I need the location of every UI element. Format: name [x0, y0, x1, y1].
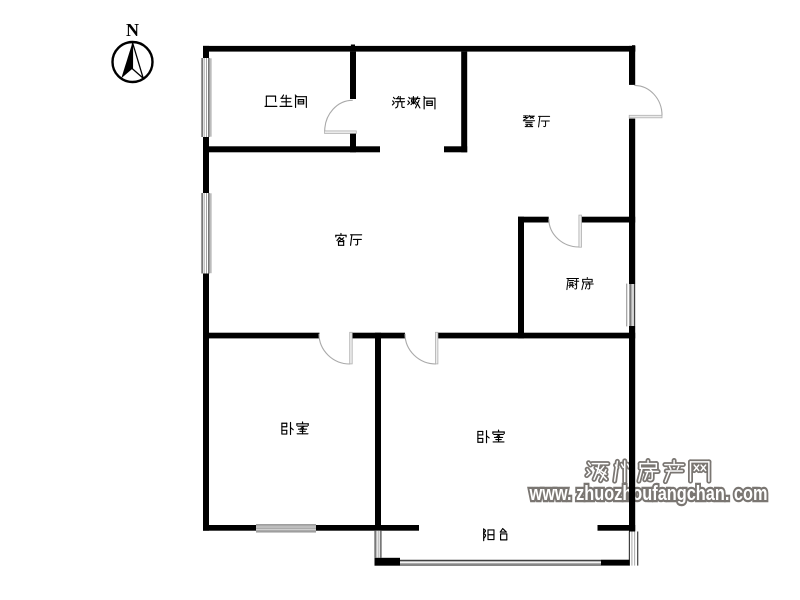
svg-text:www. zhuozhoufangchan. com: www. zhuozhoufangchan. com [529, 483, 768, 505]
svg-text:N: N [126, 20, 139, 40]
